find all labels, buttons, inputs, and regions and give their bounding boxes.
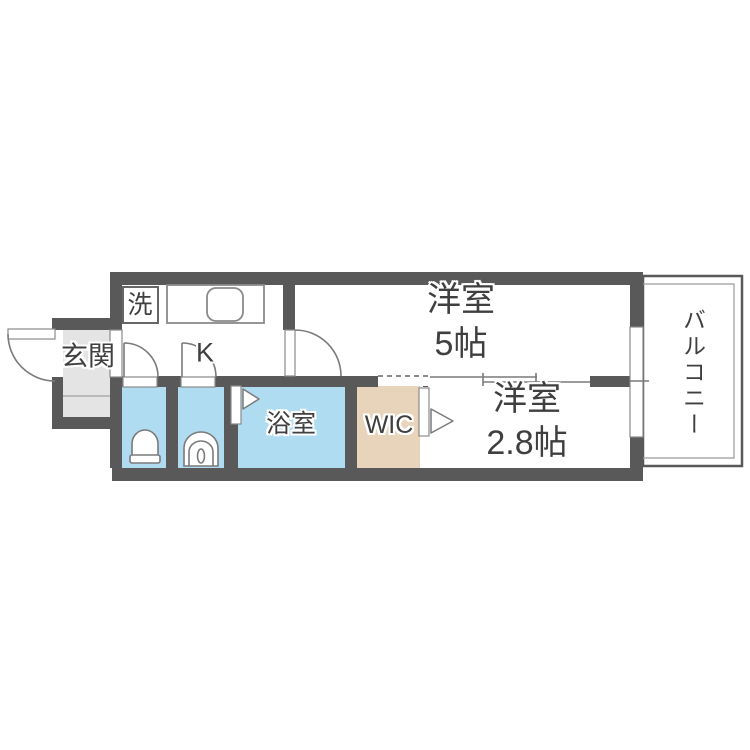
floor-plan-svg (0, 0, 750, 750)
western-room28-name: 洋室 (486, 377, 567, 421)
basin-door-sill (181, 377, 215, 387)
balcony-label: バルコニー (681, 308, 704, 438)
western-room5-label: 洋室 5帖 (427, 278, 495, 366)
wall-band-right (588, 376, 630, 387)
wall-toilet-basin (166, 384, 178, 468)
wic-label: WIC (365, 409, 414, 442)
western-room28-size: 2.8帖 (486, 421, 567, 465)
room5-door-leaf (285, 330, 295, 376)
room5-door-swing-arc-icon (295, 330, 341, 376)
toilet-base (130, 455, 160, 463)
wall-bath-wic (345, 384, 357, 468)
entry-wall-bottom (52, 417, 122, 429)
toilet-door-sill (123, 377, 157, 387)
wall-bottom (112, 468, 643, 481)
laundry-label: 洗 (127, 289, 152, 322)
wic-folding-door-arrow-icon (431, 409, 453, 433)
toilet-icon (132, 430, 158, 458)
western-room5-size: 5帖 (427, 322, 495, 366)
bathroom-label: 浴室 (266, 408, 316, 441)
washbasin-drain (198, 449, 205, 463)
balcony-window (630, 327, 643, 437)
entry-wall-top (52, 318, 112, 330)
toilet-door-swing-arc-icon (124, 343, 158, 377)
wic-opening-bg (378, 376, 430, 386)
western-room5-name: 洋室 (427, 278, 495, 322)
entrance-label: 玄関 (61, 339, 115, 374)
wall-top (112, 272, 643, 285)
kitchen-sink-icon (207, 288, 243, 321)
front-door-swing-arc-icon (8, 334, 55, 381)
kitchen-label: K (196, 335, 214, 370)
western-room28-label: 洋室 2.8帖 (486, 377, 567, 465)
wall-right-upper (630, 272, 643, 327)
wall-band-corner (110, 376, 123, 387)
bathroom-door-panel (231, 386, 241, 424)
front-door-leaf (8, 329, 55, 339)
wall-right-lower (630, 437, 643, 481)
wic-door-panel (419, 388, 429, 436)
floor-plan: 玄関 洗 K 浴室 WIC 洋室 5帖 洋室 2.8帖 バルコニー (0, 0, 750, 750)
wall-kitchen-room5 (283, 285, 295, 330)
